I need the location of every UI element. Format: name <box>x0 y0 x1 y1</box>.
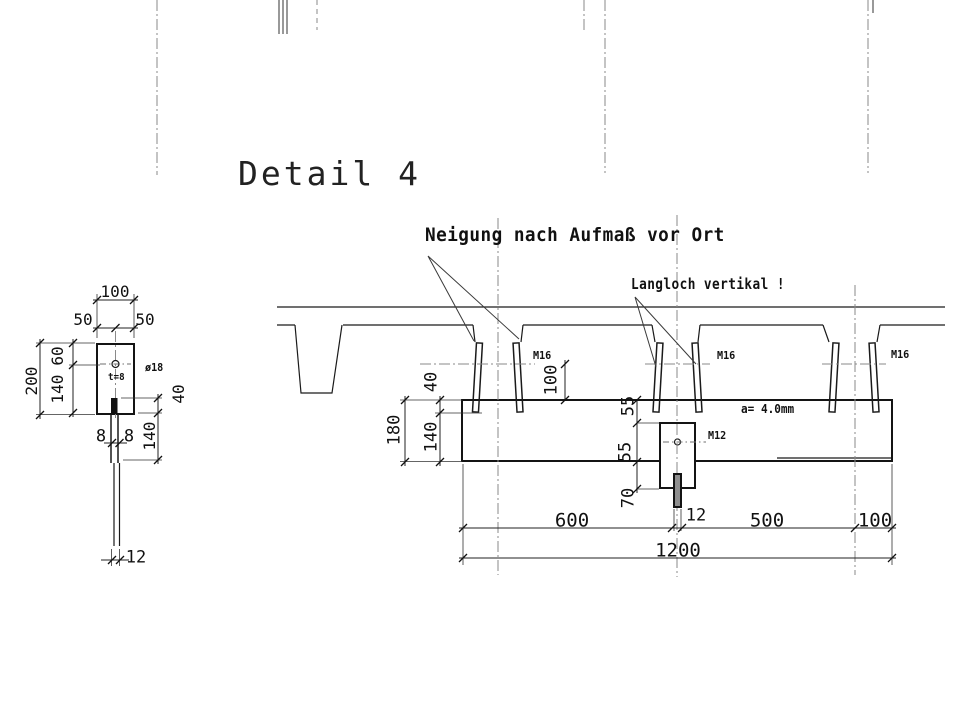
construction-lines <box>157 0 873 175</box>
hanger-plate <box>660 423 706 488</box>
weld-spec-label: a= 4.0mm <box>741 403 794 415</box>
bolt-label-m16-2: M16 <box>717 350 735 361</box>
dim-anchor-embed: 40 <box>424 372 441 392</box>
dim-bar-overlap: 40 <box>171 384 187 403</box>
bolt-label-m16-1: M16 <box>533 350 551 361</box>
dim-embed-rest: 140 <box>424 422 441 453</box>
dim-width-right: 50 <box>135 312 154 328</box>
drawing-linework <box>0 0 960 720</box>
cad-drawing-canvas: Detail 4 Neigung nach Aufmaß vor Ort Lan… <box>0 0 960 720</box>
side-view-bar-upper <box>111 414 118 463</box>
dim-span-left: 600 <box>555 512 589 531</box>
dim-rod-width: 12 <box>686 508 706 525</box>
dim-bar-thickness-right: 8 <box>124 429 134 446</box>
slot-annotation: Langloch vertikal ! <box>631 277 785 292</box>
slab-outline <box>277 307 945 393</box>
anchor-bolt-3 <box>653 343 663 412</box>
anchor-bolt-2 <box>513 343 523 412</box>
slope-annotation: Neigung nach Aufmaß vor Ort <box>425 226 725 245</box>
side-view-bar-lower <box>114 463 120 546</box>
anchor-bolt-1 <box>472 343 482 412</box>
dim-span-right: 500 <box>750 512 784 531</box>
dim-width-left: 50 <box>73 312 92 328</box>
anchor-bolt-6 <box>869 343 879 412</box>
dim-plate-width: 100 <box>101 284 130 300</box>
plate-thickness-label: t=8 <box>108 373 125 383</box>
slab-rib <box>295 325 342 393</box>
dim-plate-seg-bottom: 70 <box>621 488 638 508</box>
dim-span-total: 1200 <box>655 542 701 561</box>
bolt-label-m16-3: M16 <box>891 349 909 360</box>
page-title: Detail 4 <box>238 157 421 190</box>
dim-beam-height: 180 <box>387 415 404 446</box>
centerlines <box>420 215 886 577</box>
dim-hole-offset-top: 60 <box>50 346 66 365</box>
dim-plate-height: 200 <box>24 367 40 396</box>
dim-hole-to-bottom: 140 <box>50 375 66 404</box>
anchor-bolt-4 <box>692 343 702 412</box>
dim-plate-seg-top: 55 <box>621 396 638 416</box>
dim-span-edge: 100 <box>858 512 892 531</box>
dim-plate-seg-mid: 55 <box>618 442 635 462</box>
dim-slot-height: 100 <box>544 365 561 396</box>
dim-bar-width: 12 <box>126 550 146 567</box>
dim-bar-length: 140 <box>142 422 158 451</box>
hole-diameter-label: ø18 <box>145 362 163 373</box>
side-view-bar-embed <box>111 398 118 414</box>
dim-bar-thickness-left: 8 <box>96 429 106 446</box>
anchor-bolt-5 <box>829 343 839 412</box>
rod-label-m12: M12 <box>708 430 726 441</box>
threaded-rod <box>674 474 681 507</box>
